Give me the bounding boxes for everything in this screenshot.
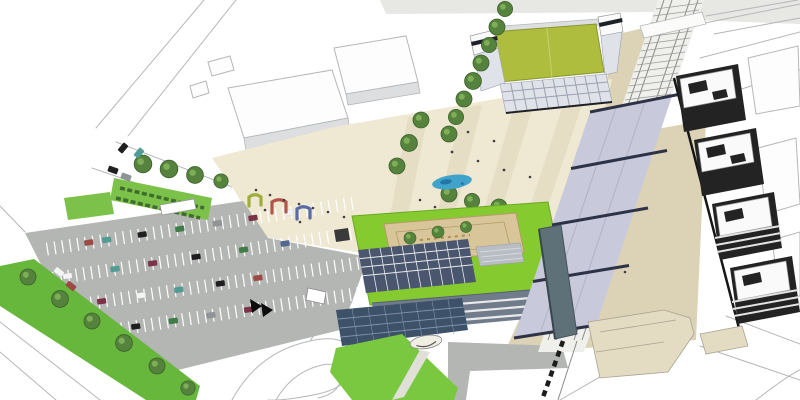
residential-block-4 [730,256,800,324]
masterplan-rendering: Aerial architectural masterplan renderin… [0,0,800,400]
roof-deck [476,243,524,266]
residential-block-3 [712,192,782,260]
stadium-pitch [492,24,604,82]
residential-block-1 [676,64,746,132]
residential-block-2 [694,128,764,196]
kiosk-dark [334,228,350,242]
context-building-2 [334,36,420,105]
